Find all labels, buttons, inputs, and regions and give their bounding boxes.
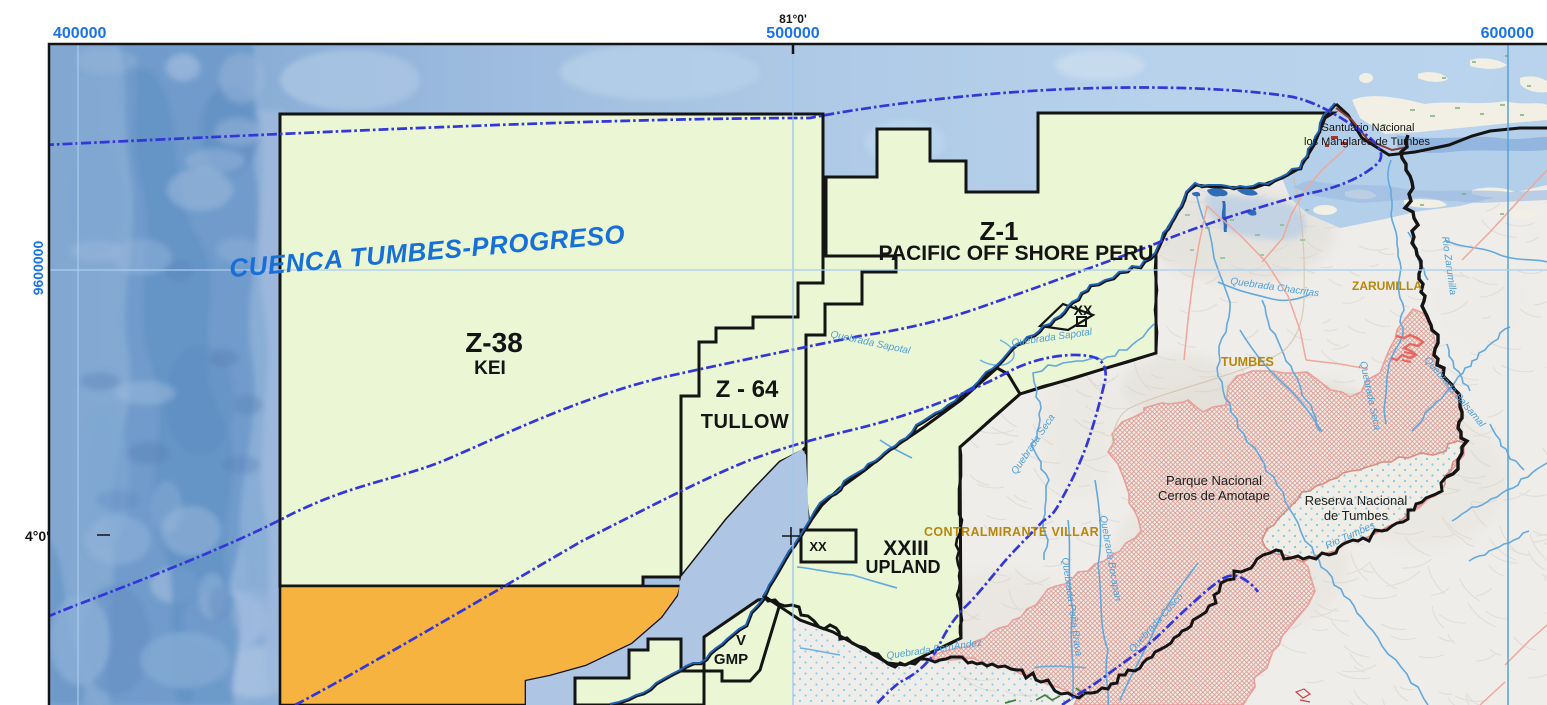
svg-text:CONTRALMIRANTE VILLAR: CONTRALMIRANTE VILLAR bbox=[924, 525, 1099, 539]
svg-text:Parque Nacional: Parque Nacional bbox=[1166, 473, 1262, 488]
svg-text:81°0': 81°0' bbox=[779, 12, 807, 26]
svg-text:KEI: KEI bbox=[474, 358, 506, 379]
svg-text:4°0': 4°0' bbox=[25, 528, 50, 544]
svg-text:PACIFIC OFF SHORE PERU: PACIFIC OFF SHORE PERU bbox=[879, 242, 1154, 265]
svg-text:Reserva Nacional: Reserva Nacional bbox=[1305, 493, 1408, 508]
svg-text:XX: XX bbox=[1074, 302, 1093, 318]
svg-text:Cerros de Amotape: Cerros de Amotape bbox=[1158, 488, 1270, 503]
svg-text:de Tumbes: de Tumbes bbox=[1324, 508, 1389, 523]
svg-text:9600000: 9600000 bbox=[30, 241, 46, 296]
svg-text:GMP: GMP bbox=[714, 651, 748, 668]
svg-text:Santuario Nacional: Santuario Nacional bbox=[1322, 122, 1415, 134]
svg-text:500000: 500000 bbox=[766, 25, 819, 42]
svg-text:600000: 600000 bbox=[1481, 25, 1534, 42]
svg-text:Z - 64: Z - 64 bbox=[716, 376, 779, 403]
svg-text:UPLAND: UPLAND bbox=[866, 557, 941, 577]
svg-text:ZARUMILLA: ZARUMILLA bbox=[1352, 279, 1422, 293]
svg-text:XX: XX bbox=[809, 539, 827, 554]
svg-text:TULLOW: TULLOW bbox=[701, 411, 790, 433]
svg-text:Z-38: Z-38 bbox=[465, 327, 523, 358]
svg-text:V: V bbox=[736, 632, 746, 649]
svg-text:los Manglares de Tumbes: los Manglares de Tumbes bbox=[1304, 136, 1430, 148]
svg-text:TUMBES: TUMBES bbox=[1221, 355, 1274, 369]
svg-text:400000: 400000 bbox=[53, 25, 106, 42]
